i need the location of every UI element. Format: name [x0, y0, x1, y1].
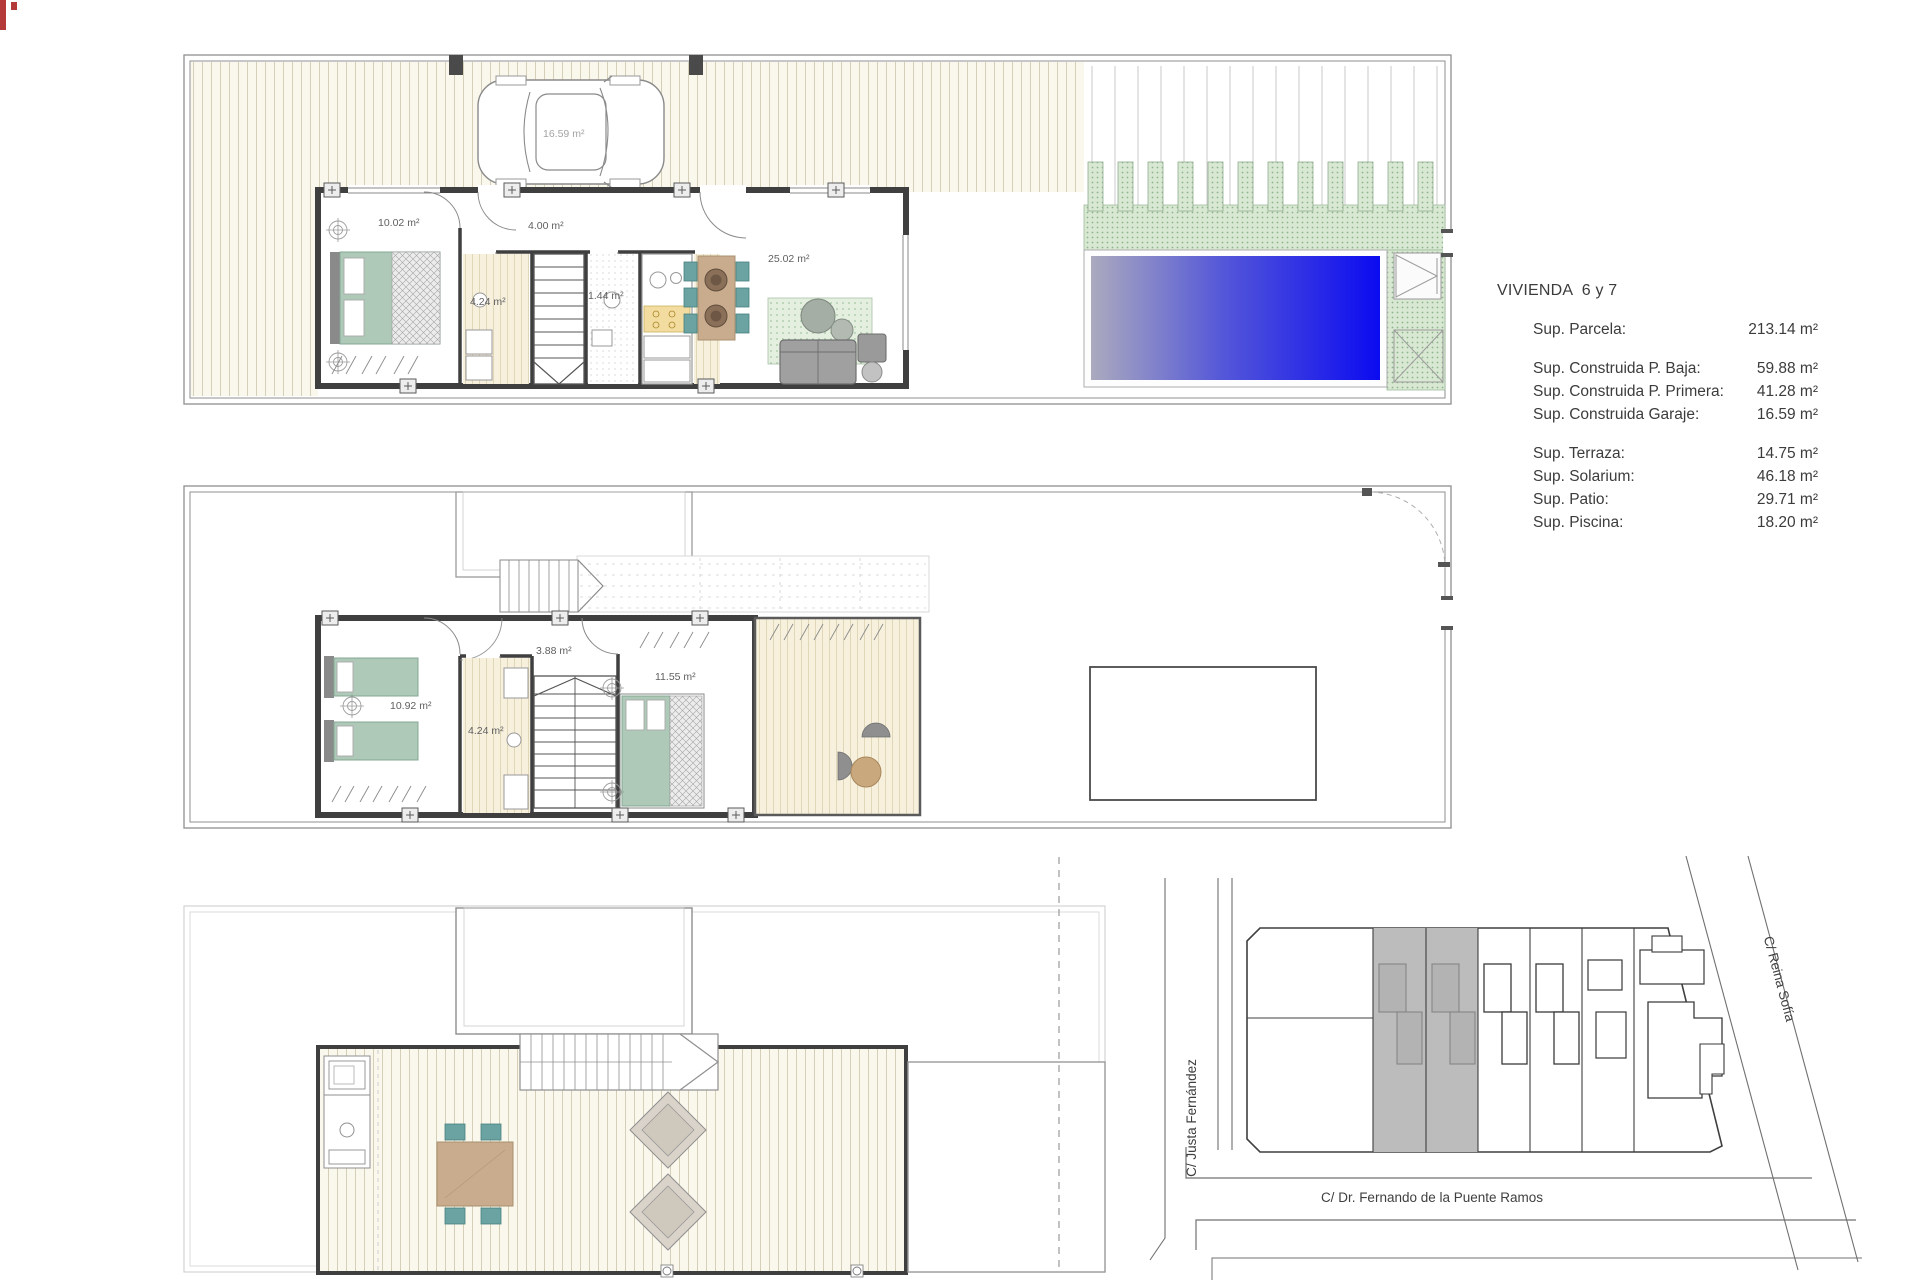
terrace-table	[851, 757, 881, 787]
stair-housing	[456, 908, 692, 1034]
surface-summary: VIVIENDA 6 y 7 Sup. Parcela: 213.14 m² S…	[1497, 280, 1818, 534]
living-area-label: 25.02 m²	[768, 253, 810, 265]
summary-group-parcel: Sup. Parcela: 213.14 m²	[1497, 318, 1818, 341]
bathroom-area-label: 4.24 m²	[470, 296, 506, 308]
double-bed	[620, 694, 704, 808]
summary-value: 14.75 m²	[1757, 442, 1818, 465]
first-floor-plan: 10.92 m² 4.24 m² 3.88 m² 11.55 m²	[184, 486, 1453, 828]
summary-label: Sup. Solarium:	[1533, 465, 1635, 488]
summary-value: 29.71 m²	[1757, 488, 1818, 511]
outdoor-kitchenette	[324, 1056, 370, 1168]
planter-box	[1394, 330, 1443, 382]
sofa	[780, 334, 886, 384]
outdoor-shower-box	[1394, 253, 1441, 299]
summary-label: Sup. Patio:	[1533, 488, 1609, 511]
site-plan: C/ Justa Fernández C/ Dr. Fernando de la…	[1059, 856, 1862, 1280]
side-patio-decking	[191, 62, 318, 396]
dwelling-title: VIVIENDA 6 y 7	[1497, 280, 1818, 302]
summary-group-exterior: Sup. Terraza: 14.75 m² Sup. Solarium: 46…	[1497, 442, 1818, 534]
bathroom	[463, 254, 529, 384]
summary-row: Sup. Piscina: 18.20 m²	[1497, 511, 1818, 534]
summary-row: Sup. Construida P. Baja: 59.88 m²	[1497, 357, 1818, 380]
roof-below-hatch	[577, 556, 929, 612]
street-name-right: C/ Reina Sofía	[1761, 934, 1798, 1023]
deck-post	[851, 1265, 863, 1277]
wc	[588, 254, 638, 384]
summary-row: Sup. Construida Garaje: 16.59 m²	[1497, 403, 1818, 426]
summary-group-built: Sup. Construida P. Baja: 59.88 m² Sup. C…	[1497, 357, 1818, 426]
summary-row: Sup. Terraza: 14.75 m²	[1497, 442, 1818, 465]
single-bed	[324, 720, 418, 762]
summary-label: Sup. Parcela:	[1533, 318, 1626, 341]
wc-area-label: 1.44 m²	[588, 290, 624, 302]
summary-label: Sup. Piscina:	[1533, 511, 1623, 534]
summary-value: 46.18 m²	[1757, 465, 1818, 488]
garage-area-label: 16.59 m²	[543, 128, 585, 140]
hall-area-label: 4.00 m²	[528, 220, 564, 232]
hall-area-label: 3.88 m²	[536, 645, 572, 657]
pool-outline-below	[1090, 667, 1316, 800]
street-lines-bottom	[1186, 1147, 1862, 1280]
double-bed	[330, 252, 440, 344]
single-bed	[324, 656, 418, 698]
summary-row: Sup. Construida P. Primera: 41.28 m²	[1497, 380, 1818, 403]
summary-row: Sup. Patio: 29.71 m²	[1497, 488, 1818, 511]
stair-flight	[520, 1034, 718, 1090]
street-name-left: C/ Justa Fernández	[1184, 1059, 1199, 1177]
terrace	[755, 618, 920, 815]
summary-label: Sup. Construida P. Primera:	[1533, 380, 1724, 403]
summary-value: 41.28 m²	[1757, 380, 1818, 403]
staircase	[534, 254, 584, 384]
summary-row: Sup. Solarium: 46.18 m²	[1497, 465, 1818, 488]
plant	[831, 319, 853, 341]
street-name-bottom: C/ Dr. Fernando de la Puente Ramos	[1321, 1190, 1543, 1205]
summary-label: Sup. Terraza:	[1533, 442, 1625, 465]
garage-door-post	[449, 55, 463, 75]
summary-value: 213.14 m²	[1748, 318, 1818, 341]
summary-row: Sup. Parcela: 213.14 m²	[1497, 318, 1818, 341]
ground-floor-plan: 16.59 m² 10.02 m² 4.00 m² 4.24 m² 1.44 m…	[184, 55, 1453, 404]
dining-table-set	[684, 256, 749, 340]
bedroom2-area-label: 11.55 m²	[655, 671, 696, 683]
deck-post	[661, 1265, 673, 1277]
summary-label: Sup. Construida P. Baja:	[1533, 357, 1701, 380]
summary-value: 16.59 m²	[1757, 403, 1818, 426]
roof-annex-outline	[908, 1062, 1105, 1272]
bathroom-area-label: 4.24 m²	[468, 725, 504, 737]
front-patio-decking	[318, 62, 1084, 192]
summary-value: 18.20 m²	[1757, 511, 1818, 534]
bedroom-area-label: 10.02 m²	[378, 217, 420, 229]
solarium-plan	[184, 906, 1105, 1277]
plant	[801, 299, 835, 333]
garage-door-post	[689, 55, 703, 75]
swimming-pool	[1091, 256, 1380, 380]
architectural-drawing: 16.59 m² 10.02 m² 4.00 m² 4.24 m² 1.44 m…	[0, 0, 1920, 1280]
bedroom1-area-label: 10.92 m²	[390, 700, 432, 712]
floor-plan-sheet: 16.59 m² 10.02 m² 4.00 m² 4.24 m² 1.44 m…	[0, 0, 1920, 1280]
summary-value: 59.88 m²	[1757, 357, 1818, 380]
pool-terrace-band	[1084, 205, 1445, 250]
summary-label: Sup. Construida Garaje:	[1533, 403, 1699, 426]
